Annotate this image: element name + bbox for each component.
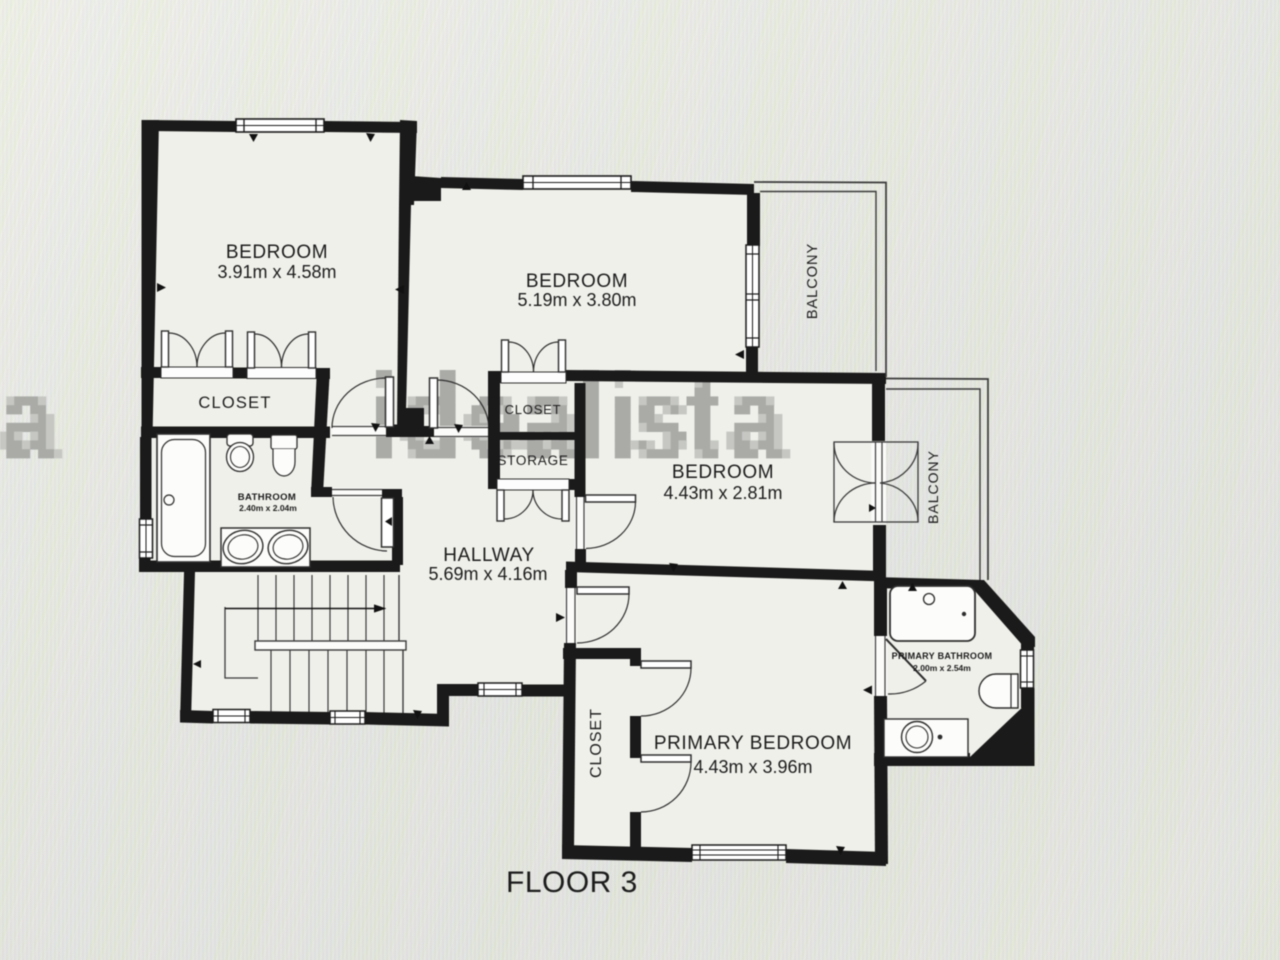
svg-text:PRIMARY BATHROOM: PRIMARY BATHROOM (892, 651, 993, 661)
svg-text:3.91m x 4.58m: 3.91m x 4.58m (217, 262, 336, 282)
svg-text:CLOSET: CLOSET (198, 394, 271, 412)
svg-text:BEDROOM: BEDROOM (526, 271, 628, 292)
svg-text:5.19m x 3.80m: 5.19m x 3.80m (517, 290, 636, 310)
svg-text:5.69m x 4.16m: 5.69m x 4.16m (428, 564, 547, 584)
svg-text:CLOSET: CLOSET (505, 402, 562, 417)
svg-text:4.43m x 2.81m: 4.43m x 2.81m (663, 483, 782, 503)
svg-text:PRIMARY BEDROOM: PRIMARY BEDROOM (654, 733, 852, 754)
svg-text:BEDROOM: BEDROOM (672, 462, 774, 483)
svg-text:HALLWAY: HALLWAY (443, 545, 534, 566)
svg-text:BATHROOM: BATHROOM (238, 492, 296, 503)
svg-text:FLOOR 3: FLOOR 3 (506, 866, 638, 899)
svg-text:BALCONY: BALCONY (925, 450, 941, 524)
svg-text:2.00m x 2.54m: 2.00m x 2.54m (913, 663, 971, 673)
svg-text:BALCONY: BALCONY (805, 243, 821, 319)
svg-text:2.40m x 2.04m: 2.40m x 2.04m (239, 503, 297, 513)
svg-text:4.43m x 3.96m: 4.43m x 3.96m (693, 757, 812, 777)
svg-text:BEDROOM: BEDROOM (226, 242, 328, 263)
svg-text:CLOSET: CLOSET (588, 708, 605, 778)
svg-text:STORAGE: STORAGE (497, 453, 568, 468)
